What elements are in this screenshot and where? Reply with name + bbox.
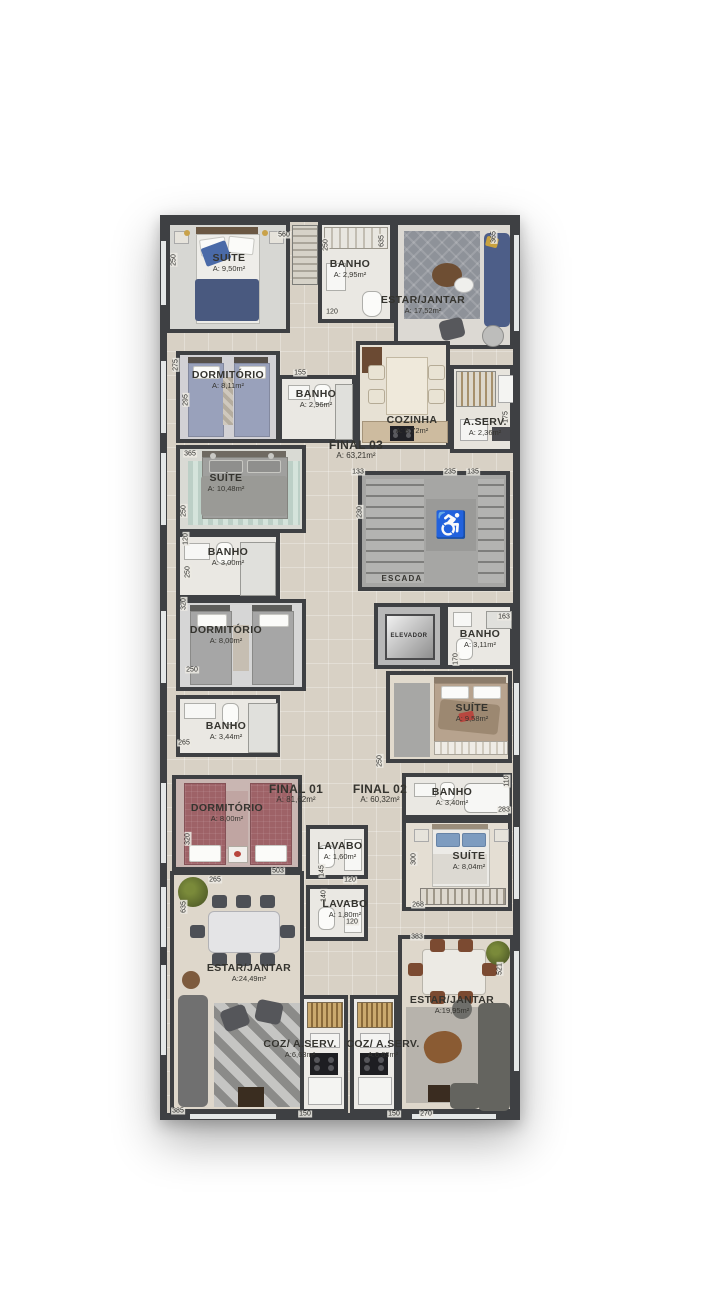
stairs [478,479,504,583]
window [160,453,167,525]
round-table [482,325,504,347]
room-estar-3 [398,935,514,1113]
room-label-suite-2: SUÍTE A: 10,48m² [208,473,245,493]
nightstand [269,231,284,244]
wall-lamp [268,453,274,459]
window [513,951,520,1071]
dining-table [422,949,486,995]
counter [184,703,216,719]
room-label-coz-1: COZ/ A.SERV. A:6,63m² [263,1039,336,1059]
bed [196,234,260,324]
dining-table [208,911,280,953]
bed [190,611,232,685]
wheelchair-icon: ♿ [435,510,467,541]
shower [335,384,353,440]
bed [184,783,226,865]
nightstand [414,829,429,842]
shower [486,611,512,629]
room-label-banho-6: BANHO A: 3,40m² [432,787,473,807]
room-label-banho-2: BANHO A: 2,96m² [296,389,337,409]
room-label-elevador: ELEVADOR [391,633,428,640]
window [160,783,167,863]
dining-table [386,357,428,415]
pantry-shelf [307,1002,343,1028]
room-suite-1 [166,221,290,333]
washer [498,375,515,403]
window [160,361,167,433]
fridge [358,1077,392,1105]
room-label-dorm-1: DORMITÓRIO A: 8,11m² [192,370,264,390]
room-label-banho-5: BANHO A: 3,44m² [206,721,247,741]
room-label-estar-3: ESTAR/JANTAR A:19,95m² [410,995,494,1015]
window [412,1113,496,1120]
room-estar-2 [170,871,304,1113]
nightstand [494,829,509,842]
stairs [366,479,424,583]
room-label-suite-1: SUÍTE A: 9,50m² [213,253,246,273]
shower [248,703,278,753]
room-label-lavabo-2: LAVABO A: 1,80m² [322,899,367,919]
room-label-estar-1: ESTAR/JANTAR A: 17,52m² [381,295,465,315]
window [513,683,520,755]
window [160,241,167,305]
room-label-dorm-2: DORMITÓRIO A: 8,00m² [190,625,262,645]
headboard [196,227,258,234]
sofa [178,995,208,1107]
toilet [362,291,382,317]
wall-lamp [210,453,216,459]
window [160,887,167,947]
shelving [456,371,496,407]
room-label-dorm-3: DORMITÓRIO A: 8,00m² [191,803,263,823]
pantry-shelf [357,1002,393,1028]
room-label-escada: ESCADA [382,575,423,584]
sofa [484,233,510,327]
closet [324,227,388,249]
room-label-coz-2: COZ/ A.SERV. A:6,63m² [346,1039,419,1059]
room-dorm-1 [176,351,280,443]
room-escada: ♿ [358,471,510,591]
room-label-estar-2: ESTAR/JANTAR A:24,49m² [207,963,291,983]
window [160,611,167,683]
bed [252,611,294,685]
window [513,235,520,331]
room-label-suite-4: SUÍTE A: 8,04m² [453,851,486,871]
plant [486,941,510,965]
pouf [238,1087,264,1107]
window [513,827,520,899]
sofa-chaise [450,1083,480,1109]
room-estar-1 [394,221,514,349]
closet [292,225,318,285]
wall-lamp [262,230,268,236]
nightstand [228,846,248,863]
bench [434,741,508,755]
pouf [428,1085,450,1102]
rug [394,683,430,757]
fridge [308,1077,342,1105]
room-label-aserv: A.SERV. A: 2,36m² [463,417,507,437]
sink [453,612,472,627]
wall-lamp [184,230,190,236]
room-label-suite-3: SUÍTE A: 9,58m² [456,703,489,723]
armchair [438,316,466,341]
side-table [454,277,474,293]
unit-label-final-02: FINAL 02 A: 60,32m² [353,783,407,805]
floor-plan: ♿ [160,215,520,1120]
room-aserv [450,365,514,453]
blanket [195,279,259,321]
room-label-lavabo-1: LAVABO A: 1,60m² [317,841,362,861]
round-table [182,971,200,989]
unit-label-final-03: FINAL 03 A: 63,21m² [329,439,383,461]
room-label-banho-4: BANHO A: 3,11m² [460,629,501,649]
room-label-banho-1: BANHO A: 2,95m² [330,259,371,279]
window [160,965,167,1055]
sofa [478,1003,510,1111]
room-label-banho-3: BANHO A: 3,00m² [208,547,249,567]
room-label-cozinha: COZINHA A: 8,72m² [387,415,438,435]
plant [178,877,208,907]
wardrobe [420,888,506,905]
window [190,1113,276,1120]
unit-label-final-01: FINAL 01 A: 81,62m² [269,783,323,805]
room-suite-3 [386,671,512,763]
sink [184,543,210,560]
